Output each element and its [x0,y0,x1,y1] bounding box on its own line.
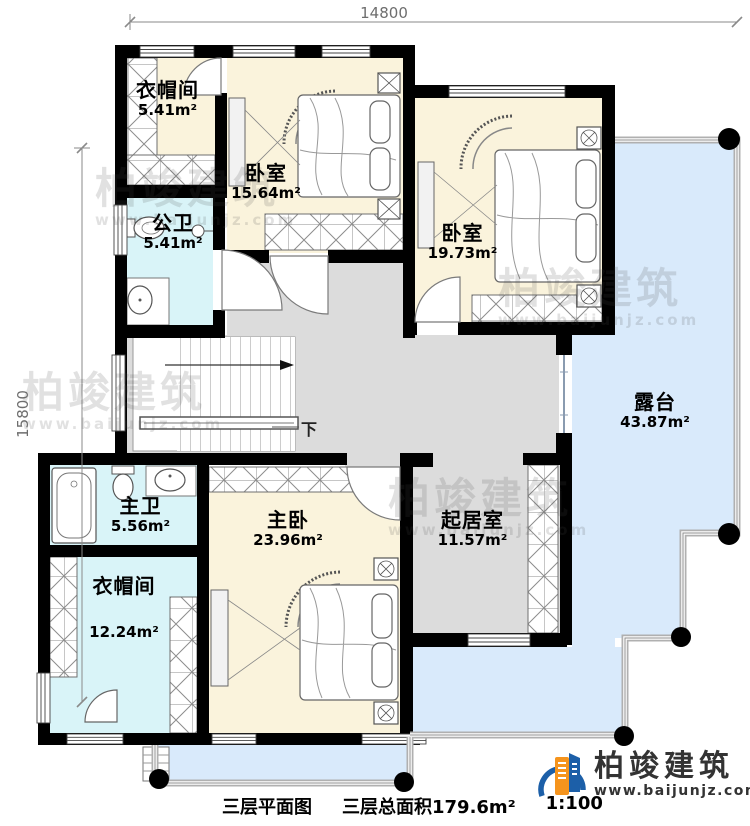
dimension-left: 15800 [14,382,32,446]
window [37,673,50,723]
window [112,355,125,431]
window [114,205,127,255]
stairs-down-label: 下 [301,416,317,440]
window [140,46,194,57]
brand-logo-icon [538,750,588,810]
floor-plan-page: 柏竣建筑 www.baijunjz.com 柏竣建筑 www.baijunjz.… [0,0,750,826]
brand-website: www.baijunjz.com [594,783,750,799]
glass-door-terrace [559,355,569,433]
brand-logo: 柏竣建筑 www.baijunjz.com [538,750,750,810]
dimension-top: 14800 [352,4,416,22]
window [67,734,123,744]
window [233,46,295,57]
window [322,46,370,57]
staircase [133,337,299,451]
floor-plan-drawing [0,0,750,826]
caption-plan-name: 三层平面图 [222,793,312,819]
window [449,86,565,97]
window [468,634,530,646]
brand-name: 柏竣建筑 [594,750,750,783]
brand-text: 柏竣建筑 www.baijunjz.com [594,750,750,799]
window [212,734,256,744]
caption-total-area: 三层总面积179.6m² [342,793,516,819]
